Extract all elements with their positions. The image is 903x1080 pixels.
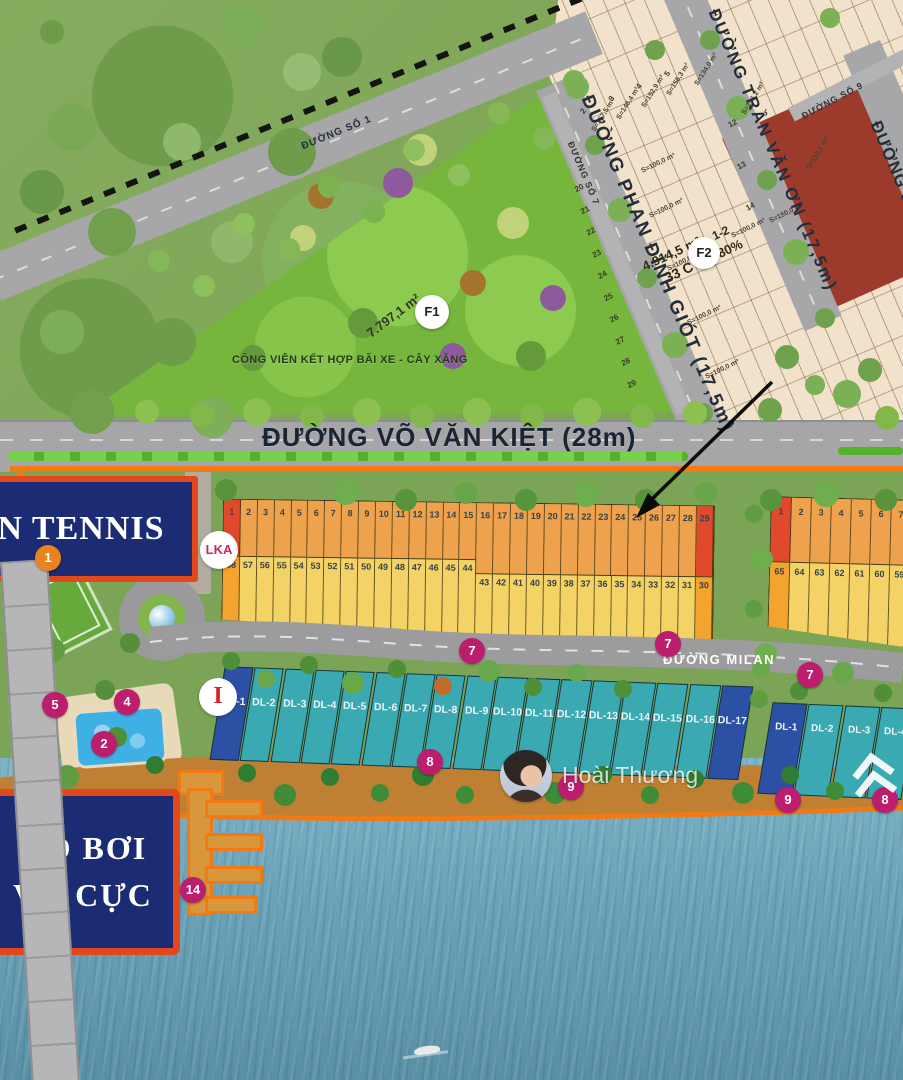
dl-lot-label: DL-12 xyxy=(557,708,587,721)
marker-circle: 7 xyxy=(459,638,485,664)
dl-lot-label: DL-1 xyxy=(769,721,803,733)
dl-lot-label: DL-13 xyxy=(589,709,619,722)
dl-lot-label: DL-16 xyxy=(685,713,715,726)
road-trees xyxy=(135,400,159,424)
marker-circle: 9 xyxy=(775,787,801,813)
beach-palm-trees xyxy=(146,756,164,774)
forest-trees xyxy=(40,20,64,44)
badge-gate-i: I xyxy=(199,678,237,716)
tennis-label: N TENNIS xyxy=(0,510,165,548)
dl-lot-label: DL-3 xyxy=(842,724,876,736)
pier-finger xyxy=(205,833,263,851)
park-marker-f1: F1 xyxy=(415,295,449,329)
road-median-green xyxy=(8,452,688,461)
marker-circle: 7 xyxy=(797,662,823,688)
road-trees xyxy=(148,250,170,272)
dl-lot-label: DL-17 xyxy=(717,714,747,727)
dl-lot-label: DL-4 xyxy=(311,699,339,712)
chevron-logo-icon xyxy=(844,745,903,808)
dl-lot-label: DL-4 xyxy=(878,726,903,738)
dl-lot-label: DL-10 xyxy=(493,706,523,719)
marker-circle: 7 xyxy=(655,631,681,657)
marker-circle: 4 xyxy=(114,689,140,715)
pier-finger xyxy=(205,800,263,818)
masterplan-map: ĐƯỜNG SỐ 1 ĐƯỜNG PHAN ĐÌNH GIÓT (17,5m) … xyxy=(0,0,903,1080)
dl-lot-label: DL-2 xyxy=(250,696,278,709)
watermark: Hoài Thương xyxy=(500,748,730,812)
marker-circle: 2 xyxy=(91,731,117,757)
dl-lot-label: DL-15 xyxy=(653,712,683,725)
watermark-name: Hoài Thương xyxy=(562,762,698,789)
dl-lot-label: DL-11 xyxy=(525,707,554,720)
park-name-label: CÔNG VIÊN KẾT HỢP BÃI XE - CÂY XĂNG xyxy=(232,354,468,366)
park-bushes xyxy=(290,225,316,251)
dl-lot-label: DL-7 xyxy=(402,702,430,715)
street-label-vo-van-kiet: ĐƯỜNG VÕ VĂN KIỆT (28m) xyxy=(262,422,636,453)
plot-number: 4 xyxy=(634,82,644,91)
site-boundary-top xyxy=(10,466,903,472)
plot-number: 3 xyxy=(606,94,616,103)
marker-circle: 14 xyxy=(180,877,206,903)
dl-lot-label: DL-14 xyxy=(621,710,651,723)
dl-lot-label: DL-3 xyxy=(281,697,309,710)
block-marker-f2: F2 xyxy=(688,237,720,269)
pier-finger xyxy=(205,866,263,884)
marker-circle: 1 xyxy=(35,545,61,571)
street-label-milan: ĐƯỜNG MILAN xyxy=(663,652,775,667)
dl-lot-label: DL-8 xyxy=(432,703,460,716)
marker-circle: 8 xyxy=(417,749,443,775)
dl-lot-label: DL-6 xyxy=(372,701,400,714)
road-median-green xyxy=(838,447,903,455)
dl-lot-label: DL-2 xyxy=(806,723,840,735)
pier-finger xyxy=(205,896,257,914)
dl-lot-label: DL-5 xyxy=(341,700,369,713)
dl-lot-label: DL-9 xyxy=(462,704,490,717)
road-trees xyxy=(222,652,240,670)
site-trees xyxy=(745,505,763,523)
marker-circle: 5 xyxy=(42,692,68,718)
badge-lka: LKA xyxy=(200,531,238,569)
watermark-avatar xyxy=(500,750,552,802)
